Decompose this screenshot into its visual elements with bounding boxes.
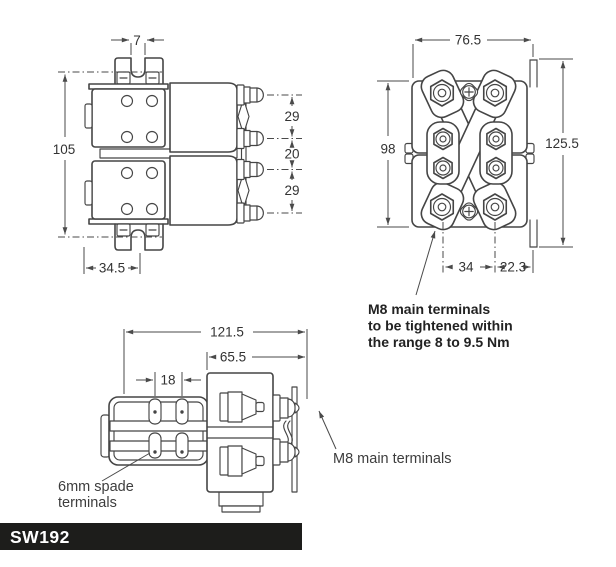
dim-body-height: 98: [380, 142, 395, 157]
dim-terminal-pitch-bottom: 29: [284, 183, 299, 198]
torque-note-leader: [416, 231, 435, 295]
dim-overall-height-front: 125.5: [545, 136, 579, 151]
technical-drawing: 7 105 29 20 29 34.5: [0, 0, 616, 567]
dim-slot-width: 7: [133, 33, 141, 48]
front-view-body: [405, 60, 537, 247]
flange-tab-top: [530, 60, 537, 87]
upper-coil-can: [170, 83, 237, 152]
lower-coil-can: [170, 156, 237, 225]
dim-mounting-offset: 34.5: [99, 261, 125, 276]
upper-contactor-plate: [92, 89, 165, 147]
torque-note-line3: the range 8 to 9.5 Nm: [368, 334, 510, 350]
dim-overall-height: 105: [53, 142, 76, 157]
dim-body-width: 76.5: [455, 33, 481, 48]
torque-note: M8 main terminals to be tightened within…: [368, 301, 513, 350]
flange-tab-bottom: [530, 220, 537, 247]
plan-view: 121.5 65.5 18 6mm spade terminals M8 mai…: [58, 325, 451, 513]
side-terminal-studs: [237, 85, 263, 223]
model-number: SW192: [10, 527, 70, 547]
torque-note-line2: to be tightened within: [368, 318, 513, 334]
front-view: 76.5 98 125.5 34 22.3: [368, 33, 579, 351]
dim-overall-length: 121.5: [210, 325, 244, 340]
dim-terminal-spacing: 34: [458, 260, 474, 275]
side-view: 7 105 29 20 29 34.5: [53, 33, 302, 276]
datasheet-page: 7 105 29 20 29 34.5: [0, 0, 616, 567]
spade-label-line2: terminals: [58, 495, 117, 511]
lower-contactor-plate: [92, 161, 165, 219]
dim-body-length: 65.5: [220, 350, 246, 365]
m8-terminals-label: M8 main terminals: [333, 451, 451, 467]
side-view-body: [85, 58, 263, 250]
dim-bracket-offset: 22.3: [500, 260, 526, 275]
spade-label-line1: 6mm spade: [58, 479, 134, 495]
footer-bar: SW192: [0, 523, 302, 550]
dim-spade-spacing: 18: [160, 373, 175, 388]
m8-label-leader: [319, 411, 336, 449]
dim-terminal-pitch-middle: 20: [284, 147, 299, 162]
torque-note-line1: M8 main terminals: [368, 301, 490, 317]
dim-terminal-pitch-top: 29: [284, 109, 299, 124]
